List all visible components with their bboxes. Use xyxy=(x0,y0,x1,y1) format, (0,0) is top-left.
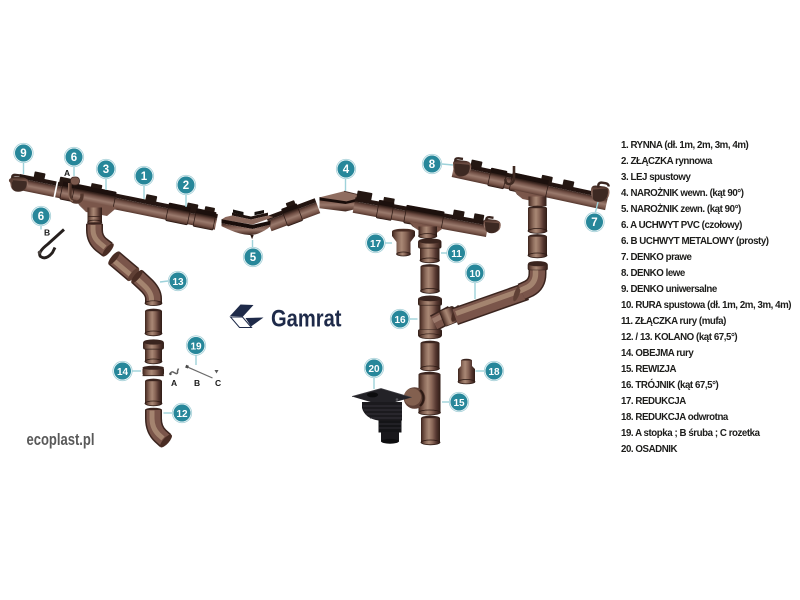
svg-text:8: 8 xyxy=(429,159,436,171)
svg-text:3: 3 xyxy=(103,164,109,176)
svg-text:19: 19 xyxy=(190,341,202,352)
svg-text:1: 1 xyxy=(141,171,148,183)
svg-text:6: 6 xyxy=(38,211,44,223)
svg-text:ecoplast.pl: ecoplast.pl xyxy=(27,430,95,449)
svg-text:B: B xyxy=(194,378,200,388)
svg-text:5: 5 xyxy=(250,252,257,264)
svg-text:15: 15 xyxy=(453,398,465,409)
svg-text:A: A xyxy=(171,378,177,388)
svg-text:16: 16 xyxy=(394,315,406,326)
svg-text:13: 13 xyxy=(172,277,184,288)
svg-text:C: C xyxy=(215,378,221,388)
svg-text:Gamrat: Gamrat xyxy=(271,306,342,333)
svg-text:18: 18 xyxy=(488,367,500,378)
svg-text:20: 20 xyxy=(368,364,380,375)
svg-text:4: 4 xyxy=(343,164,350,176)
svg-text:14: 14 xyxy=(117,367,129,378)
svg-text:A: A xyxy=(64,168,70,178)
svg-text:6: 6 xyxy=(71,152,77,164)
svg-text:12: 12 xyxy=(176,409,188,420)
svg-text:17: 17 xyxy=(370,239,382,250)
svg-text:7: 7 xyxy=(591,217,597,229)
svg-text:10: 10 xyxy=(469,269,481,280)
svg-text:11: 11 xyxy=(451,249,462,260)
svg-text:9: 9 xyxy=(20,148,26,160)
svg-text:2: 2 xyxy=(183,180,189,192)
svg-text:B: B xyxy=(44,228,50,238)
